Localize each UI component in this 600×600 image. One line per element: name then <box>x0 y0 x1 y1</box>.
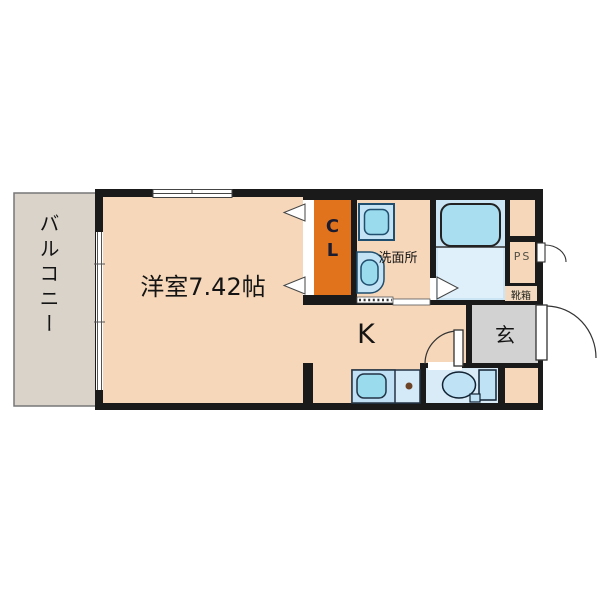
balcony-label: バルコニー <box>34 213 61 338</box>
kitchen-sink-icon <box>357 374 386 398</box>
washing-machine-drum <box>365 210 389 235</box>
entrance-label: 玄 <box>485 319 525 348</box>
entrance-door-leaf <box>536 305 547 360</box>
toilet-handle <box>470 394 480 402</box>
ps-door-arc <box>545 245 566 262</box>
burner-dot-icon <box>406 383 413 390</box>
washroom-doorway <box>393 299 430 305</box>
washroom-label: 洗面所 <box>362 247 434 266</box>
kitchen-label: K <box>341 319 391 350</box>
entrance-side-floor <box>505 368 538 403</box>
shoe-box-label: 靴箱 <box>505 287 537 302</box>
bathroom-door-panel <box>430 278 436 300</box>
closet-label: CL <box>322 216 343 264</box>
duct-space-area <box>510 200 535 236</box>
pipe-space-label: PS <box>506 250 539 263</box>
entrance-door-arc <box>547 306 596 358</box>
main-room-label: 洋室7.42帖 <box>103 267 303 302</box>
toilet-tank <box>479 370 496 400</box>
floor-plan: バルコニー 洋室7.42帖 CL 洗面所 K 玄 PS 靴箱 <box>0 0 600 600</box>
bathtub-icon <box>441 204 500 246</box>
toilet-door-leaf <box>454 330 463 366</box>
